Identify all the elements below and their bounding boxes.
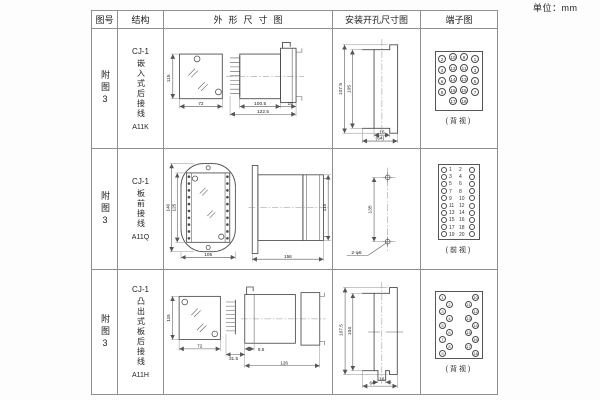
- view-label-row2: (前视): [446, 245, 473, 255]
- model-row3: CJ-1: [132, 285, 149, 294]
- terminal-circle: [441, 231, 447, 237]
- terminal-circle: [469, 181, 475, 187]
- dim-label: (64): [376, 135, 385, 141]
- dim-label: 122.5: [256, 108, 268, 114]
- terminal-circle: 14: [449, 75, 457, 83]
- terminal-circle: [441, 188, 447, 194]
- terminal-circle: [469, 174, 475, 180]
- terminal-number: 13: [449, 210, 455, 216]
- terminal-circle: 15: [465, 329, 472, 336]
- terminal-circle: [441, 167, 447, 173]
- terminal-circle: [469, 188, 475, 194]
- terminal-grid: 1357911131517192468101214161820: [438, 164, 480, 240]
- terminal-circle: 2: [438, 55, 446, 63]
- dim-label: 105: [204, 251, 212, 256]
- header-outline: 外形尺寸图: [164, 11, 333, 29]
- structure-cell-row3: CJ-1 凸出式板后接线 A11H: [118, 270, 164, 394]
- view-label-row3: (背视): [446, 364, 473, 374]
- terminal-circle: 9: [460, 53, 468, 61]
- terminal-number: 2: [459, 167, 462, 173]
- terminal-circle: 5: [471, 77, 479, 85]
- terminal-circle: 7: [439, 336, 446, 343]
- terminal-number: 19: [449, 232, 455, 238]
- view-label-row1: (背视): [446, 116, 473, 126]
- terminal-number: 5: [449, 181, 452, 187]
- terminal-number: 3: [449, 174, 452, 180]
- dim-label: 72: [198, 101, 204, 107]
- header-mounting: 安装开孔尺寸图: [333, 11, 421, 29]
- terminal-circle: 3: [471, 66, 479, 74]
- outline-drawing-a11q: 140 125 105 156 115: [166, 154, 331, 265]
- fig-no-cell-row2: 附图3: [92, 149, 118, 270]
- terminal-number: 15: [449, 217, 455, 223]
- terminal-circle: 7: [471, 88, 479, 96]
- terminal-circle: 12: [472, 308, 479, 315]
- dim-label: 31.5: [228, 356, 237, 361]
- terminal-circle: 11: [460, 64, 468, 72]
- terminal-cell-row2: 1357911131517192468101214161820 (前视): [421, 149, 497, 270]
- outline-cell-row3: 115 72 31.5 9.5 126: [164, 270, 333, 394]
- terminal-circle: [469, 203, 475, 209]
- terminal-circle: 6: [446, 329, 453, 336]
- unit-label: 单位：mm: [533, 1, 578, 14]
- dim-label: 15: [287, 101, 293, 107]
- dim-label: 9.5: [257, 347, 264, 352]
- terminal-circle: 11: [465, 301, 472, 308]
- structure-code-row3: A11H: [132, 372, 149, 379]
- dim-label: 135: [368, 205, 374, 213]
- mounting-drawing-a11k: 107.5 105 16 (64): [334, 34, 419, 144]
- terminal-number: 10: [459, 196, 465, 202]
- mounting-cell-row1: 107.5 105 16 (64): [333, 29, 421, 149]
- terminal-diagram-a11q: 1357911131517192468101214161820 (前视): [438, 164, 480, 255]
- terminal-cell-row1: 210914121136141358161571718 (背视): [421, 29, 497, 149]
- terminal-grid: 123456789101112131415161718: [435, 291, 483, 359]
- terminal-number: 17: [449, 225, 455, 231]
- terminal-circle: [469, 231, 475, 237]
- terminal-number: 1: [449, 167, 452, 173]
- terminal-number: 4: [459, 174, 462, 180]
- terminal-circle: 14: [472, 322, 479, 329]
- terminal-circle: 6: [438, 77, 446, 85]
- terminal-circle: 17: [465, 343, 472, 350]
- dim-label: 115: [321, 203, 326, 211]
- header-fig-no: 图号: [92, 11, 118, 29]
- terminal-circle: 9: [439, 350, 446, 357]
- terminal-number: 12: [459, 203, 465, 209]
- dim-label: 2-φ6: [351, 249, 361, 255]
- terminal-number: 8: [459, 189, 462, 195]
- mounting-drawing-a11h: 107.5 104 16 64: [334, 274, 419, 390]
- mounting-drawing-a11q: 135 2-φ6: [334, 154, 419, 265]
- dim-label: 115: [166, 74, 172, 82]
- terminal-circle: 10: [449, 53, 457, 61]
- dim-label: 16: [379, 376, 385, 382]
- outline-cell-row1: 115 72 100.5 15 122.5: [164, 29, 333, 149]
- terminal-circle: 13: [465, 315, 472, 322]
- terminal-circle: [441, 210, 447, 216]
- terminal-number: 16: [459, 217, 465, 223]
- header-terminal: 端子图: [421, 11, 497, 29]
- model-row2: CJ-1: [132, 177, 149, 186]
- terminal-circle: 1: [439, 294, 446, 301]
- terminal-number: 14: [459, 210, 465, 216]
- dim-label: 107.5: [339, 324, 345, 336]
- fig-no-row3: 附图3: [100, 314, 109, 351]
- fig-no-cell-row3: 附图3: [92, 270, 118, 394]
- terminal-circle: 15: [460, 86, 468, 94]
- dim-label: 107.5: [338, 82, 344, 95]
- terminal-circle: 18: [460, 97, 468, 105]
- fig-no-row2: 附图3: [100, 191, 109, 228]
- dim-label: 126: [280, 360, 288, 365]
- dim-label: 72: [197, 343, 203, 348]
- structure-code-row1: A11K: [132, 124, 149, 131]
- terminal-circle: 17: [449, 97, 457, 105]
- terminal-grid: 210914121136141358161571718: [435, 51, 483, 111]
- dim-label: 16: [379, 129, 385, 135]
- terminal-circle: [441, 217, 447, 223]
- dim-label: 105: [346, 84, 352, 92]
- terminal-circle: [469, 195, 475, 201]
- fig-no-cell-row1: 附图3: [92, 29, 118, 149]
- terminal-circle: 5: [439, 322, 446, 329]
- terminal-diagram-a11h: 123456789101112131415161718 (背视): [435, 291, 483, 374]
- model-row1: CJ-1: [132, 47, 149, 56]
- dim-label: 100.5: [254, 101, 266, 107]
- datasheet-page: 单位：mm 图号 结构 外形尺寸图 安装开孔尺寸图 端子图 附图3 CJ-1 嵌…: [0, 0, 600, 400]
- fig-no-row1: 附图3: [100, 70, 109, 107]
- terminal-circle: 13: [460, 75, 468, 83]
- terminal-cell-row3: 123456789101112131415161718 (背视): [421, 270, 497, 394]
- outline-cell-row2: 140 125 105 156 115: [164, 149, 333, 270]
- dim-label: 104: [347, 327, 353, 335]
- structure-cell-row1: CJ-1 嵌入式后接线 A11K: [118, 29, 164, 149]
- structure-code-row2: A11Q: [132, 234, 149, 241]
- terminal-circle: [469, 167, 475, 173]
- terminal-circle: 16: [472, 336, 479, 343]
- terminal-circle: [441, 195, 447, 201]
- terminal-circle: [441, 174, 447, 180]
- terminal-circle: [469, 224, 475, 230]
- terminal-circle: 1: [471, 55, 479, 63]
- mounting-cell-row2: 135 2-φ6: [333, 149, 421, 270]
- terminal-circle: 8: [438, 88, 446, 96]
- terminal-number: 18: [459, 225, 465, 231]
- terminal-circle: 10: [472, 294, 479, 301]
- terminal-number: 11: [449, 203, 454, 209]
- outline-drawing-a11h: 115 72 31.5 9.5 126: [166, 274, 331, 390]
- outline-drawing-a11k: 115 72 100.5 15 122.5: [166, 34, 331, 144]
- terminal-circle: [441, 224, 447, 230]
- structure-type-row1: 嵌入式后接线: [137, 59, 145, 119]
- terminal-circle: 3: [439, 308, 446, 315]
- terminal-circle: [441, 203, 447, 209]
- terminal-number: 7: [449, 189, 452, 195]
- dim-label: 64: [369, 381, 375, 387]
- terminal-circle: 2: [446, 301, 453, 308]
- terminal-circle: [441, 181, 447, 187]
- dim-label: 156: [283, 253, 291, 258]
- terminal-number: 6: [459, 181, 462, 187]
- structure-cell-row2: CJ-1 板前接线 A11Q: [118, 149, 164, 270]
- structure-type-row3: 凸出式板后接线: [137, 297, 145, 367]
- structure-type-row2: 板前接线: [137, 189, 145, 229]
- terminal-circle: 16: [449, 86, 457, 94]
- mounting-cell-row3: 107.5 104 16 64: [333, 270, 421, 394]
- spec-table: 图号 结构 外形尺寸图 安装开孔尺寸图 端子图 附图3 CJ-1 嵌入式后接线 …: [91, 10, 498, 395]
- dim-label: 125: [171, 203, 176, 211]
- dim-label: 115: [166, 314, 171, 322]
- terminal-diagram-a11k: 210914121136141358161571718 (背视): [435, 51, 483, 126]
- terminal-circle: [469, 217, 475, 223]
- dim-label: 140: [166, 203, 170, 211]
- terminal-dots: [187, 175, 228, 239]
- terminal-number: 9: [449, 196, 452, 202]
- terminal-number: 20: [459, 232, 465, 238]
- header-structure: 结构: [118, 11, 164, 29]
- terminal-circle: 18: [472, 350, 479, 357]
- terminal-circle: [469, 210, 475, 216]
- terminal-circle: 12: [449, 64, 457, 72]
- terminal-circle: 4: [446, 315, 453, 322]
- terminal-circle: 8: [446, 343, 453, 350]
- terminal-circle: 4: [438, 66, 446, 74]
